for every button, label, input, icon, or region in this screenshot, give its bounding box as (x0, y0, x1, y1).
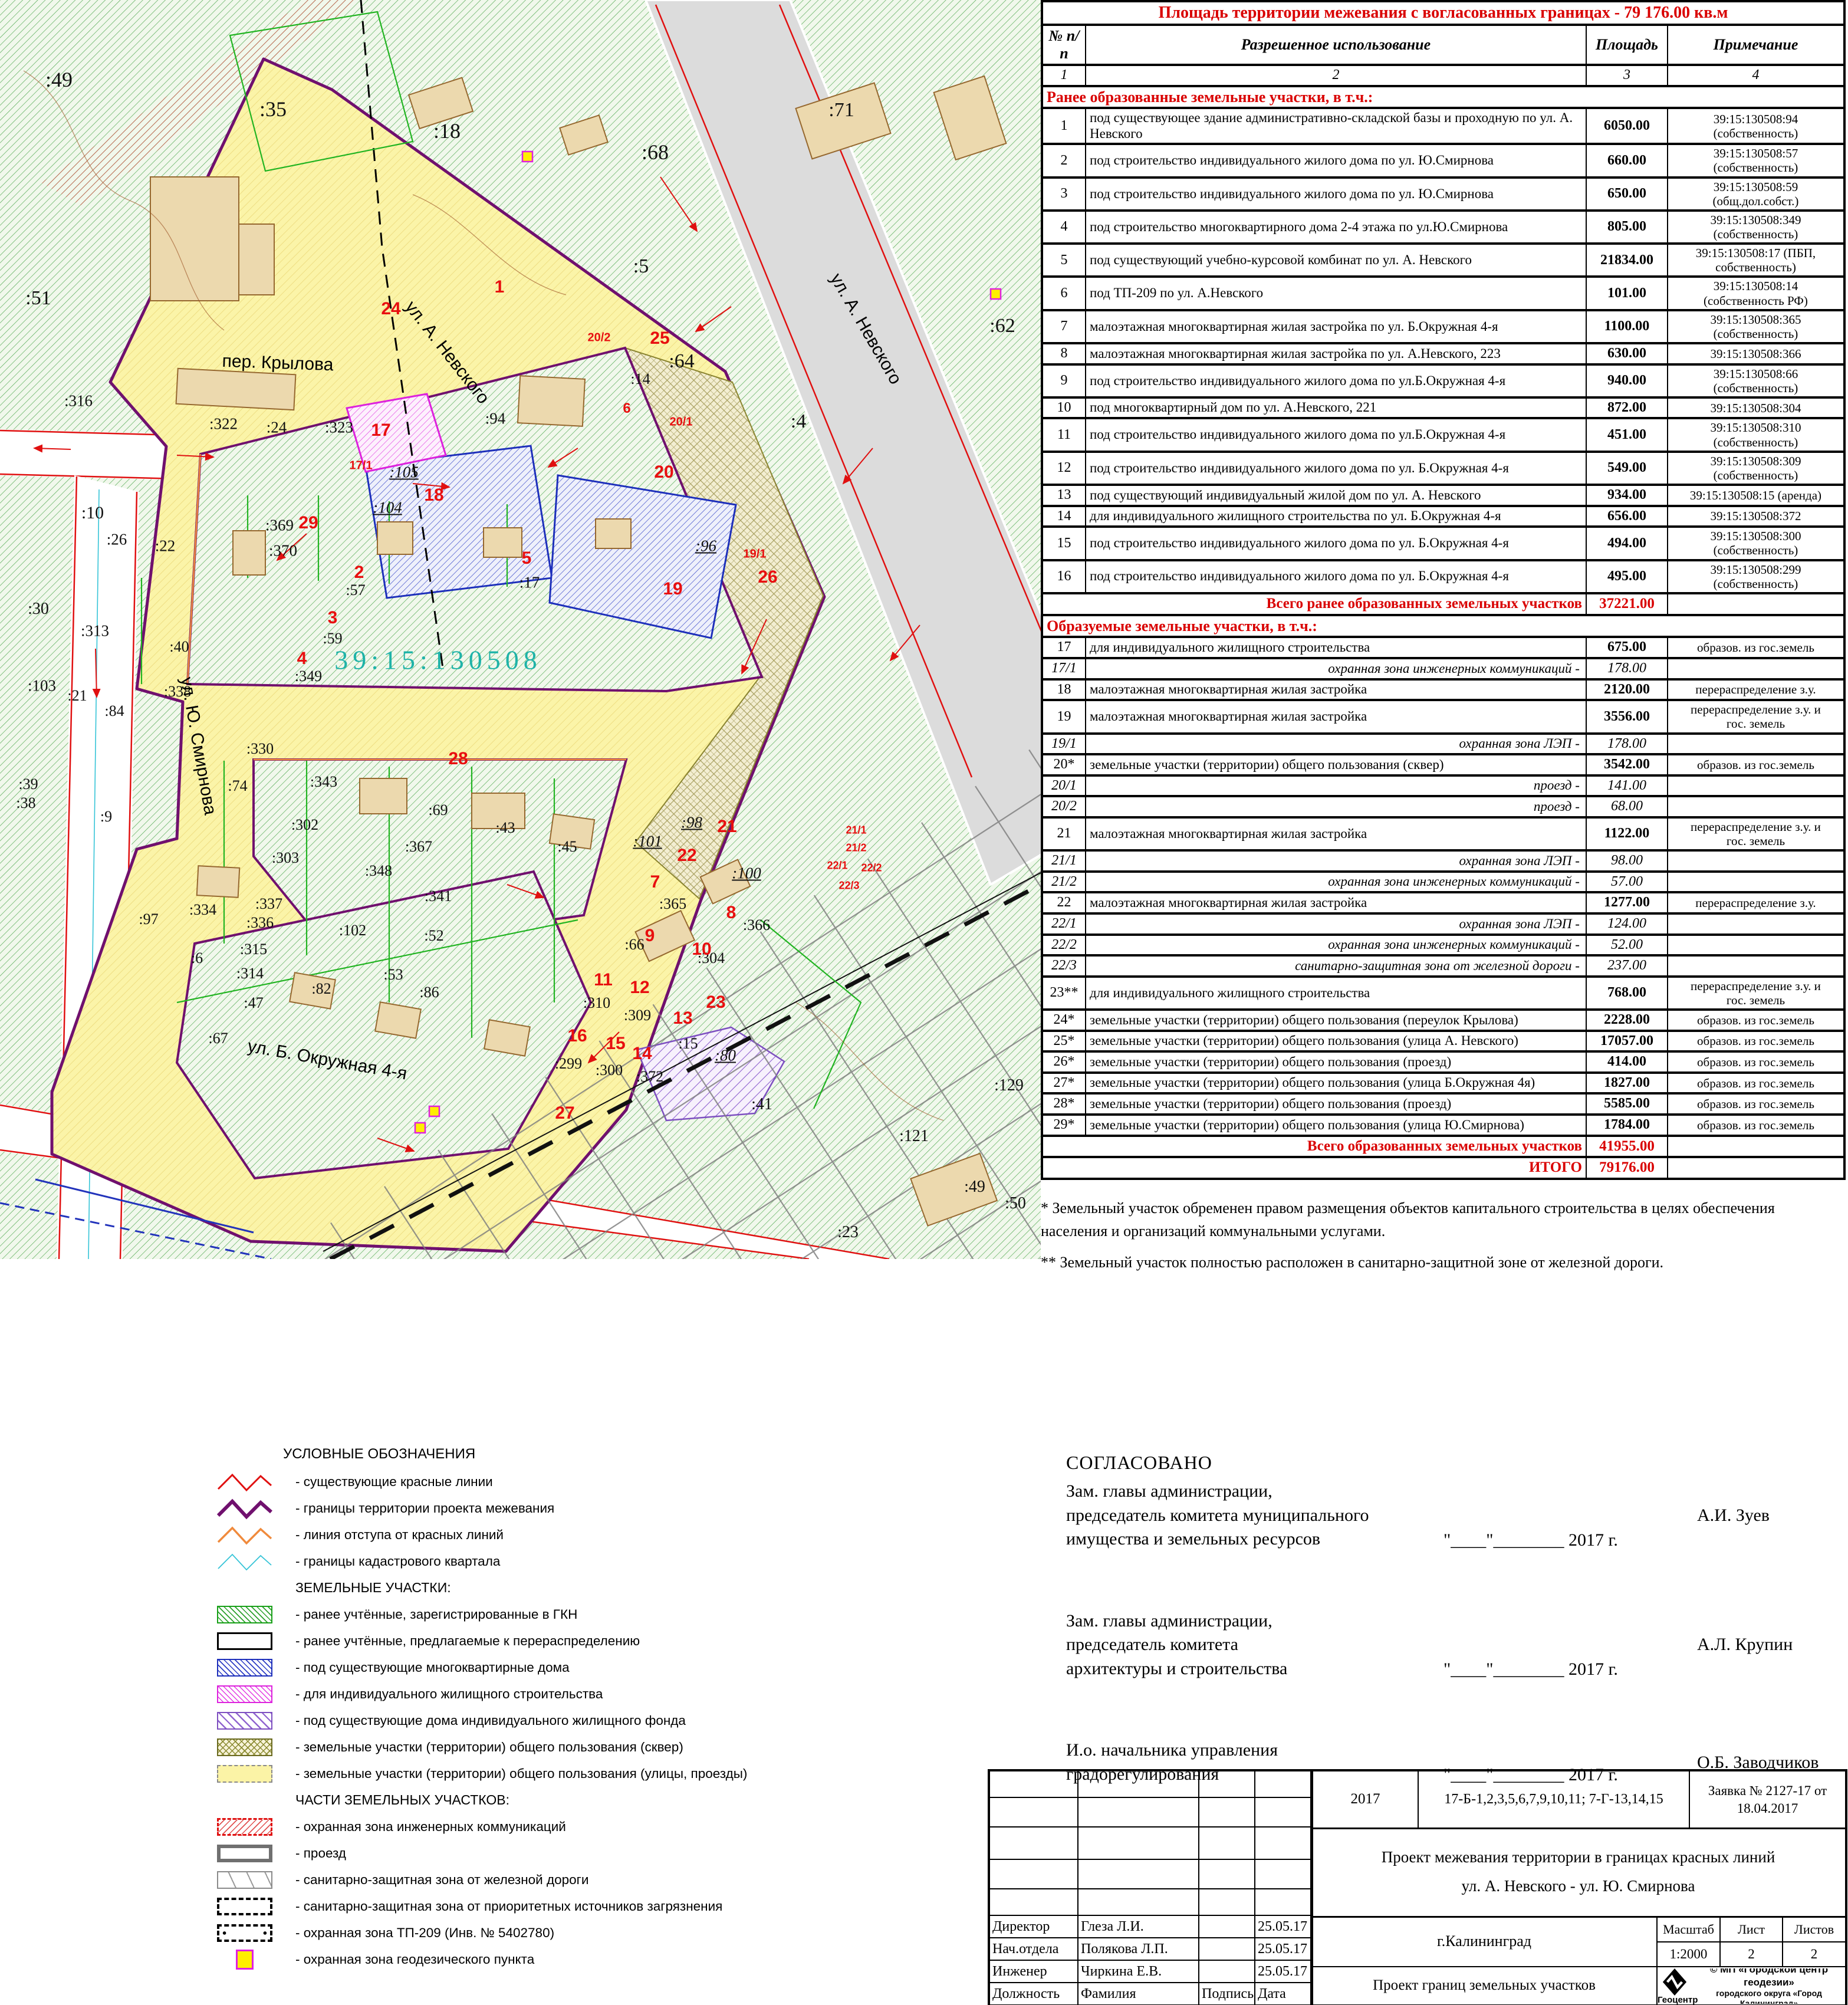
legend-item-label: - ранее учтённые, предлагаемые к перерас… (295, 1633, 640, 1649)
table-cell: 3542.00 (1586, 754, 1668, 775)
stamp-sheets-code: 17-Б-1,2,3,5,6,7,9,10,11; 7-Г-13,14,15 (1419, 1771, 1689, 1827)
table-cell: 19/1 (1042, 734, 1086, 755)
legend-item-label: - земельные участки (территории) общего … (295, 1740, 683, 1755)
table-cell: малоэтажная многоквартирная жилая застро… (1086, 817, 1586, 850)
table-cell: земельные участки (территории) общего по… (1086, 1093, 1586, 1115)
footnote-1: * Земельный участок обременен правом раз… (1041, 1197, 1825, 1243)
legend-item-label: - границы кадастрового квартала (295, 1554, 500, 1569)
table-title-row: Площадь территории межевания с вогласова… (1042, 1, 1844, 25)
table-cell: 39:15:130508:14 (собственность РФ) (1668, 277, 1844, 310)
table-cell: 39:15:130508:349 (собственность) (1668, 211, 1844, 244)
map-canvas (0, 0, 1041, 1259)
legend-item: - границы кадастрового квартала (209, 1548, 941, 1575)
stamp-sheet-label: Лист (1721, 1918, 1782, 1941)
legend-item-label: - охранная зона инженерных коммуникаций (295, 1819, 566, 1835)
table-cell (1668, 775, 1844, 797)
table-row: 17/1охранная зона инженерных коммуникаци… (1042, 658, 1844, 679)
table-cell: малоэтажная многоквартирная жилая застро… (1086, 700, 1586, 733)
table-cell: под существующее здание административно-… (1086, 108, 1586, 144)
table-cell: под многоквартирный дом по ул. А.Невског… (1086, 397, 1586, 419)
table-row: 26*земельные участки (территории) общего… (1042, 1051, 1844, 1073)
table-cell: земельные участки (территории) общего по… (1086, 1031, 1586, 1052)
table-cell: 660.00 (1586, 144, 1668, 177)
table-row: 17для индивидуального жилищного строител… (1042, 637, 1844, 658)
table-cell: 3 (1042, 178, 1086, 211)
table-cell: Ранее образованные земельные участки, в … (1042, 86, 1844, 109)
table-row: 25*земельные участки (территории) общего… (1042, 1031, 1844, 1052)
square-geo-swatch-icon (236, 1950, 254, 1970)
table-cell: для индивидуального жилищного строительс… (1086, 637, 1586, 658)
table-cell (1668, 872, 1844, 893)
table-cell: 37221.00 (1586, 593, 1668, 615)
stamp-title-line1: Проект межевания территории в границах к… (1382, 1847, 1775, 1868)
table-cell: образов. из гос.земель (1668, 637, 1844, 658)
legend-item-label: - санитарно-защитная зона от приоритетны… (295, 1899, 722, 1914)
table-row: Ранее образованные земельные участки, в … (1042, 86, 1844, 109)
table-cell: под строительство индивидуального жилого… (1086, 178, 1586, 211)
table-cell: 57.00 (1586, 872, 1668, 893)
stamp-request: Заявка № 2127-17 от 18.04.2017 (1690, 1771, 1845, 1827)
dashed-black-swatch-icon (217, 1898, 272, 1915)
table-cell: 656.00 (1586, 506, 1668, 527)
table-cell: перераспределение з.у. и гос. земель (1668, 700, 1844, 733)
table-cell (1668, 850, 1844, 872)
table-row: 21малоэтажная многоквартирная жилая заст… (1042, 817, 1844, 850)
legend-item-label: - проезд (295, 1846, 346, 1861)
stamp-signer-date: 25.05.17 (1255, 1961, 1311, 1983)
table-cell: 22/2 (1042, 935, 1086, 956)
table-row: 21/1охранная зона ЛЭП -98.00 (1042, 850, 1844, 872)
geocentre-logo-icon (1662, 1968, 1687, 1996)
stamp-signer-role: Инженер (990, 1961, 1078, 1983)
table-cell: 178.00 (1586, 734, 1668, 755)
table-row: 18малоэтажная многоквартирная жилая заст… (1042, 679, 1844, 701)
table-row: 16под строительство индивидуального жило… (1042, 560, 1844, 593)
table-cell: земельные участки (территории) общего по… (1086, 754, 1586, 775)
table-cell: проезд - (1086, 796, 1586, 817)
table-cell: 23** (1042, 977, 1086, 1010)
table-cell: 1277.00 (1586, 892, 1668, 913)
approval-role: Зам. главы администрации, председатель к… (1066, 1609, 1443, 1681)
table-cell: 1784.00 (1586, 1115, 1668, 1136)
cadastral-map: 39:15:130508 :49:35:18:68:5:64:4:62:71:5… (0, 0, 1041, 1259)
legend-item-label: - санитарно-защитная зона от железной до… (295, 1872, 588, 1888)
stamp-signers-grid: ДиректорГлеза Л.И.25.05.17Нач.отделаПоля… (990, 1771, 1311, 2004)
table-cell: 940.00 (1586, 364, 1668, 397)
table-row: ИТОГО79176.00 (1042, 1157, 1844, 1179)
table-cell: 39:15:130508:300 (собственность) (1668, 527, 1844, 560)
table-cell: 39:15:130508:17 (ПБП, собственность) (1668, 244, 1844, 277)
table-row: Образуемые земельные участки, в т.ч.: (1042, 615, 1844, 637)
stamp-city: г.Калининград (1313, 1918, 1655, 1964)
table-cell: охранная зона инженерных коммуникаций - (1086, 935, 1586, 956)
table-cell: 19 (1042, 700, 1086, 733)
stamp-grid-cell (1078, 1889, 1199, 1916)
table-cell: 2 (1042, 144, 1086, 177)
table-cell: Всего образованных земельных участков (1042, 1136, 1586, 1158)
stamp-grid-cell (990, 1860, 1078, 1889)
stamp-grid-cell (1255, 1889, 1311, 1916)
table-cell: перераспределение з.у. и гос. земель (1668, 977, 1844, 1010)
table-cell: под ТП-209 по ул. А.Невского (1086, 277, 1586, 310)
table-cell (1668, 734, 1844, 755)
table-row: 22/2охранная зона инженерных коммуникаци… (1042, 935, 1844, 956)
table-cell: 20/1 (1042, 775, 1086, 797)
table-cell: 675.00 (1586, 637, 1668, 658)
stamp-grid-cell (1255, 1860, 1311, 1889)
stamp-org: © МП «Городской центр геодезии» городско… (1693, 1968, 1845, 2004)
plain-white-swatch-icon (217, 1632, 272, 1650)
zigzag-red-icon (217, 1470, 272, 1494)
stamp-grid-cell (1078, 1798, 1199, 1827)
col-header-use: Разрешенное использование (1086, 25, 1586, 65)
table-cell: образов. из гос.земель (1668, 1051, 1844, 1073)
stamp-column-label: Дата (1255, 1983, 1311, 2004)
table-cell: 39:15:130508:310 (собственность) (1668, 418, 1844, 451)
stamp-grid-cell (1199, 1889, 1255, 1916)
table-cell: под строительство индивидуального жилого… (1086, 418, 1586, 451)
table-row: 14для индивидуального жилищного строител… (1042, 506, 1844, 527)
table-title: Площадь территории межевания с вогласова… (1042, 1, 1844, 25)
legend-item-label: - земельные участки (территории) общего … (295, 1766, 747, 1782)
legend-item: - ранее учтённые, зарегистрированные в Г… (209, 1601, 941, 1628)
stamp-grid-cell (1078, 1771, 1199, 1798)
table-cell: 16 (1042, 560, 1086, 593)
table-cell: 934.00 (1586, 485, 1668, 506)
stamp-column-label: Фамилия (1078, 1983, 1199, 2004)
table-cell: Образуемые земельные участки, в т.ч.: (1042, 615, 1844, 637)
stamp-grid-cell (1255, 1798, 1311, 1827)
fill-yellow-swatch-icon (217, 1765, 272, 1783)
legend-item-label: - существующие красные линии (295, 1474, 493, 1490)
table-row: 20/1проезд -141.00 (1042, 775, 1844, 797)
legend-item-label: - линия отступа от красных линий (295, 1527, 504, 1543)
table-cell: земельные участки (территории) общего по… (1086, 1010, 1586, 1031)
stamp-column-label: Должность (990, 1983, 1078, 2004)
table-cell: 25* (1042, 1031, 1086, 1052)
legend-item-label: - охранная зона геодезического пункта (295, 1952, 534, 1967)
table-cell: образов. из гос.земель (1668, 754, 1844, 775)
table-cell: 872.00 (1586, 397, 1668, 419)
table-cell: 20* (1042, 754, 1086, 775)
stamp-grid-cell (990, 1827, 1078, 1860)
stamp-grid-cell (1199, 1860, 1255, 1889)
table-cell: 6050.00 (1586, 108, 1668, 144)
table-cell: образов. из гос.земель (1668, 1093, 1844, 1115)
table-cell: 650.00 (1586, 178, 1668, 211)
table-cell: малоэтажная многоквартирная жилая застро… (1086, 679, 1586, 701)
table-row: 4под строительство многоквартирного дома… (1042, 211, 1844, 244)
table-cell: образов. из гос.земель (1668, 1010, 1844, 1031)
table-cell: образов. из гос.земель (1668, 1115, 1844, 1136)
table-cell: 768.00 (1586, 977, 1668, 1010)
table-cell: 14 (1042, 506, 1086, 527)
table-cell: санитарно-защитная зона от железной доро… (1086, 955, 1586, 977)
table-cell (1668, 935, 1844, 956)
table-cell: 4 (1042, 211, 1086, 244)
table-cell: 39:15:130508:366 (1668, 343, 1844, 364)
legend-item: - санитарно-защитная зона от железной до… (209, 1866, 941, 1893)
table-colnum-row: 1 2 3 4 (1042, 65, 1844, 86)
table-row: 22/1охранная зона ЛЭП -124.00 (1042, 913, 1844, 935)
table-row: 2под строительство индивидуального жилог… (1042, 144, 1844, 177)
stamp-signer-signature (1199, 1938, 1255, 1961)
table-cell: земельные участки (территории) общего по… (1086, 1051, 1586, 1073)
table-cell (1668, 913, 1844, 935)
legend-item: - санитарно-защитная зона от приоритетны… (209, 1893, 941, 1919)
cross-olive-swatch-icon (217, 1738, 272, 1756)
table-cell: 21/2 (1042, 872, 1086, 893)
legend-item: - земельные участки (территории) общего … (209, 1760, 941, 1787)
border-gray-swatch-icon (217, 1845, 272, 1862)
table-cell: 39:15:130508:365 (собственность) (1668, 310, 1844, 343)
table-cell: 22/1 (1042, 913, 1086, 935)
table-cell: образов. из гос.земель (1668, 1073, 1844, 1094)
table-cell: 13 (1042, 485, 1086, 506)
table-cell: малоэтажная многоквартирная жилая застро… (1086, 892, 1586, 913)
stamp-grid-cell (1199, 1798, 1255, 1827)
approval-entry: Зам. главы администрации, председатель к… (1066, 1609, 1842, 1681)
col-header-num: № п/п (1042, 25, 1086, 65)
table-cell: 237.00 (1586, 955, 1668, 977)
table-cell: проезд - (1086, 775, 1586, 797)
table-cell: для индивидуального жилищного строительс… (1086, 506, 1586, 527)
table-cell: 39:15:130508:309 (собственность) (1668, 452, 1844, 485)
table-row: 3под строительство индивидуального жилог… (1042, 178, 1844, 211)
stamp-signer-role: Директор (990, 1916, 1078, 1938)
table-cell: 39:15:130508:15 (аренда) (1668, 485, 1844, 506)
table-cell: 12 (1042, 452, 1086, 485)
stamp-signer-name: Глеза Л.И. (1078, 1916, 1199, 1938)
table-cell: 39:15:130508:57 (собственность) (1668, 144, 1844, 177)
legend-item: ЗЕМЕЛЬНЫЕ УЧАСТКИ: (209, 1575, 941, 1601)
table-cell: 494.00 (1586, 527, 1668, 560)
table-row: Всего ранее образованных земельных участ… (1042, 593, 1844, 615)
legend-item: - проезд (209, 1840, 941, 1866)
hatch-red-dashed-swatch-icon (217, 1818, 272, 1836)
table-cell: 39:15:130508:299 (собственность) (1668, 560, 1844, 593)
table-row: 19малоэтажная многоквартирная жилая заст… (1042, 700, 1844, 733)
table-row: 10под многоквартирный дом по ул. А.Невск… (1042, 397, 1844, 419)
table-cell: 68.00 (1586, 796, 1668, 817)
legend-item: - ранее учтённые, предлагаемые к перерас… (209, 1628, 941, 1654)
stamp-title-line2: ул. А. Невского - ул. Ю. Смирнова (1462, 1876, 1695, 1896)
stamp-signer-role: Нач.отдела (990, 1938, 1078, 1961)
table-row: 13под существующий индивидуальный жилой … (1042, 485, 1844, 506)
table-cell: 24* (1042, 1010, 1086, 1031)
table-cell: 101.00 (1586, 277, 1668, 310)
table-cell: 41955.00 (1586, 1136, 1668, 1158)
stamp-grid-cell (990, 1889, 1078, 1916)
table-cell: малоэтажная многоквартирная жилая застро… (1086, 310, 1586, 343)
table-row: 22малоэтажная многоквартирная жилая заст… (1042, 892, 1844, 913)
table-cell: для индивидуального жилищного строительс… (1086, 977, 1586, 1010)
stamp-signer-date: 25.05.17 (1255, 1938, 1311, 1961)
table-cell: 5585.00 (1586, 1093, 1668, 1115)
legend-item: - под существующие дома индивидуального … (209, 1707, 941, 1734)
table-cell: 5 (1042, 244, 1086, 277)
legend-section-header: ЗЕМЕЛЬНЫЕ УЧАСТКИ: (295, 1580, 451, 1596)
stamp-org-line2: городского округа «Город Калининград» (1693, 1988, 1845, 2004)
table-row: 9под строительство индивидуального жилог… (1042, 364, 1844, 397)
table-row: 29*земельные участки (территории) общего… (1042, 1115, 1844, 1136)
zigzag-cyan-icon (217, 1550, 272, 1573)
table-cell: под строительство индивидуального жилого… (1086, 452, 1586, 485)
table-cell: охранная зона ЛЭП - (1086, 734, 1586, 755)
stamp-grid-cell (990, 1798, 1078, 1827)
table-cell: Всего ранее образованных земельных участ… (1042, 593, 1586, 615)
title-block: ДиректорГлеза Л.И.25.05.17Нач.отделаПоля… (988, 1769, 1847, 2005)
parcel-table: Площадь территории межевания с вогласова… (1041, 0, 1846, 1180)
geocentre-logo-text: Геоцентр (1658, 1995, 1698, 2005)
legend-item-label: - под существующие дома индивидуального … (295, 1713, 686, 1728)
table-cell: 98.00 (1586, 850, 1668, 872)
legend-item-label: - границы территории проекта межевания (295, 1501, 554, 1516)
stamp-doc-type: Проект границ земельных участков (1313, 1967, 1655, 2004)
legend-title: УСЛОВНЫЕ ОБОЗНАЧЕНИЯ (283, 1446, 941, 1462)
stamp-sheet: 2 (1721, 1942, 1782, 1966)
legend-item: - охранная зона геодезического пункта (209, 1946, 941, 1973)
table-row: 23**для индивидуального жилищного строит… (1042, 977, 1844, 1010)
table-cell: 3556.00 (1586, 700, 1668, 733)
stamp-grid-cell (1255, 1771, 1311, 1798)
table-cell: охранная зона инженерных коммуникаций - (1086, 872, 1586, 893)
table-cell: 549.00 (1586, 452, 1668, 485)
hatch-violet-swatch-icon (217, 1712, 272, 1730)
table-cell: охранная зона инженерных коммуникаций - (1086, 658, 1586, 679)
table-cell: под существующий учебно-курсовой комбина… (1086, 244, 1586, 277)
approval-role: Зам. главы администрации, председатель к… (1066, 1480, 1443, 1552)
stamp-year: 2017 (1313, 1771, 1418, 1827)
table-cell (1668, 658, 1844, 679)
parcel-table-body: Площадь территории межевания с вогласова… (1042, 1, 1844, 1179)
approval-name: А.И. Зуев (1697, 1506, 1842, 1526)
legend-item: - охранная зона инженерных коммуникаций (209, 1813, 941, 1840)
approval-date: "____"________ 2017 г. (1443, 1659, 1697, 1681)
table-header-row: № п/п Разрешенное использование Площадь … (1042, 25, 1844, 65)
table-cell: малоэтажная многоквартирная жилая застро… (1086, 343, 1586, 364)
stamp-signer-signature (1199, 1961, 1255, 1983)
approval-entry: Зам. главы администрации, председатель к… (1066, 1480, 1842, 1552)
table-cell: 2120.00 (1586, 679, 1668, 701)
approvals-heading: СОГЛАСОВАНО (1066, 1452, 1842, 1474)
right-column: Площадь территории межевания с вогласова… (1041, 0, 1848, 1282)
table-cell: под строительство индивидуального жилого… (1086, 527, 1586, 560)
table-row: 20/2проезд -68.00 (1042, 796, 1844, 817)
table-cell: 1827.00 (1586, 1073, 1668, 1094)
table-cell: 18 (1042, 679, 1086, 701)
table-cell: 22/3 (1042, 955, 1086, 977)
table-cell: 495.00 (1586, 560, 1668, 593)
stamp-grid-cell (1255, 1827, 1311, 1860)
table-row: 5под существующий учебно-курсовой комбин… (1042, 244, 1844, 277)
footnotes: * Земельный участок обременен правом раз… (1041, 1197, 1825, 1274)
col-header-area: Площадь (1586, 25, 1668, 65)
table-cell: 39:15:130508:59 (общ.дол.собст.) (1668, 178, 1844, 211)
table-cell: 1 (1042, 108, 1086, 144)
table-cell: 805.00 (1586, 211, 1668, 244)
table-cell: под строительство индивидуального жилого… (1086, 144, 1586, 177)
table-cell: образов. из гос.земель (1668, 1031, 1844, 1052)
table-cell (1668, 796, 1844, 817)
table-cell: 22 (1042, 892, 1086, 913)
legend-item: - охранная зона ТП-209 (Инв. № 5402780) (209, 1919, 941, 1946)
legend-section-header: ЧАСТИ ЗЕМЕЛЬНЫХ УЧАСТКОВ: (295, 1792, 509, 1808)
table-cell: 8 (1042, 343, 1086, 364)
stamp-grid-cell (1078, 1827, 1199, 1860)
table-cell (1668, 593, 1844, 615)
stamp-grid-cell (990, 1771, 1078, 1798)
table-cell: 7 (1042, 310, 1086, 343)
table-cell: 2228.00 (1586, 1010, 1668, 1031)
table-cell: 17/1 (1042, 658, 1086, 679)
table-cell: 630.00 (1586, 343, 1668, 364)
table-cell: 28* (1042, 1093, 1086, 1115)
table-cell: 10 (1042, 397, 1086, 419)
dashdot-black-swatch-icon (217, 1924, 272, 1942)
table-cell: 52.00 (1586, 935, 1668, 956)
table-cell: под строительство индивидуального жилого… (1086, 560, 1586, 593)
diag-gray-swatch-icon (217, 1871, 272, 1889)
table-cell: 11 (1042, 418, 1086, 451)
legend-item: - границы территории проекта межевания (209, 1495, 941, 1521)
approval-date: "____"________ 2017 г. (1443, 1530, 1697, 1552)
legend-item-label: - ранее учтённые, зарегистрированные в Г… (295, 1607, 577, 1622)
table-row: 12под строительство индивидуального жило… (1042, 452, 1844, 485)
table-cell: земельные участки (территории) общего по… (1086, 1073, 1586, 1094)
col-header-note: Примечание (1668, 25, 1844, 65)
table-cell: 39:15:130508:94 (собственность) (1668, 108, 1844, 144)
table-row: 8малоэтажная многоквартирная жилая застр… (1042, 343, 1844, 364)
table-cell: 124.00 (1586, 913, 1668, 935)
table-row: 20*земельные участки (территории) общего… (1042, 754, 1844, 775)
stamp-sheets-label: Листов (1783, 1918, 1845, 1941)
legend-item: - линия отступа от красных линий (209, 1521, 941, 1548)
table-cell: под строительство индивидуального жилого… (1086, 364, 1586, 397)
table-cell: ИТОГО (1042, 1157, 1586, 1179)
table-cell: 26* (1042, 1051, 1086, 1073)
table-row: 24*земельные участки (территории) общего… (1042, 1010, 1844, 1031)
zigzag-purple-icon (217, 1497, 272, 1520)
table-cell: 39:15:130508:304 (1668, 397, 1844, 419)
table-cell: охранная зона ЛЭП - (1086, 850, 1586, 872)
table-cell: 9 (1042, 364, 1086, 397)
table-cell: под существующий индивидуальный жилой до… (1086, 485, 1586, 506)
legend-items: - существующие красные линии- границы те… (209, 1468, 941, 1973)
table-cell: 1100.00 (1586, 310, 1668, 343)
table-row: Всего образованных земельных участков419… (1042, 1136, 1844, 1158)
table-cell (1668, 1136, 1844, 1158)
table-cell: 39:15:130508:66 (собственность) (1668, 364, 1844, 397)
table-cell (1668, 955, 1844, 977)
table-cell: 17057.00 (1586, 1031, 1668, 1052)
table-cell: 21/1 (1042, 850, 1086, 872)
table-cell: 15 (1042, 527, 1086, 560)
legend-item: - земельные участки (территории) общего … (209, 1734, 941, 1760)
table-row: 27*земельные участки (территории) общего… (1042, 1073, 1844, 1094)
stamp-org-line1: © МП «Городской центр геодезии» (1693, 1968, 1845, 1988)
stamp-project-title: Проект межевания территории в границах к… (1313, 1829, 1843, 1914)
table-row: 22/3санитарно-защитная зона от железной … (1042, 955, 1844, 977)
table-cell: 21834.00 (1586, 244, 1668, 277)
table-cell: 21 (1042, 817, 1086, 850)
stamp-grid-cell (1199, 1827, 1255, 1860)
approval-entries: Зам. главы администрации, председатель к… (1066, 1480, 1842, 1786)
table-cell: охранная зона ЛЭП - (1086, 913, 1586, 935)
table-row: 1под существующее здание административно… (1042, 108, 1844, 144)
table-cell (1668, 1157, 1844, 1179)
table-cell: 20/2 (1042, 796, 1086, 817)
